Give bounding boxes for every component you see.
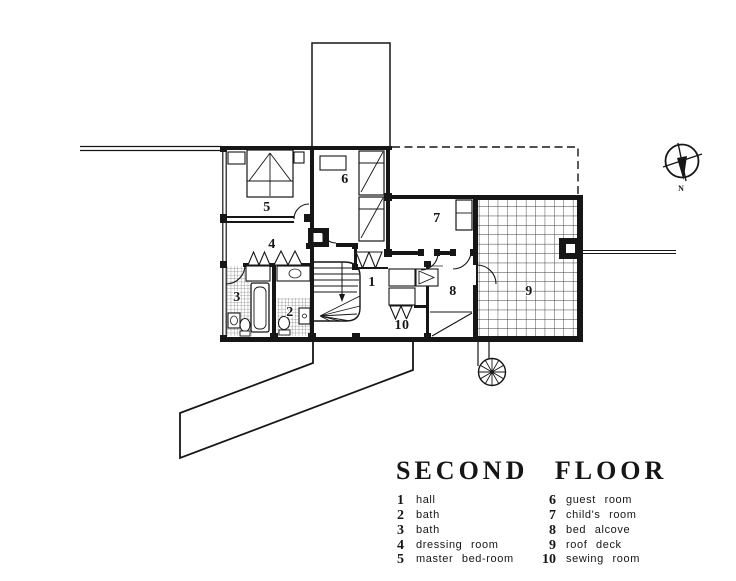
legend-label: sewing room xyxy=(566,553,640,565)
wall-top-west xyxy=(220,146,392,150)
label-room-8: 8 xyxy=(449,284,457,299)
bed-guest-1 xyxy=(359,151,384,195)
east-trellis-line xyxy=(582,251,676,254)
north-compass-icon: N xyxy=(663,143,702,193)
label-room-3: 3 xyxy=(233,290,241,305)
bath3-toilet xyxy=(240,319,250,337)
legend-column-2: 6 guest room 7 child's room 8 bed alcove… xyxy=(542,493,640,567)
wall-room5-south-b xyxy=(222,221,294,223)
hall-cabinet-2 xyxy=(389,288,415,305)
site-lines xyxy=(80,43,676,458)
bath2-counter xyxy=(277,266,310,281)
bifold-doors-hall xyxy=(356,252,382,268)
legend-label: bath xyxy=(416,524,440,536)
legend-num: 3 xyxy=(397,523,404,538)
shelf-guest-room xyxy=(320,156,346,170)
main-stair xyxy=(314,262,360,321)
chimney-center xyxy=(308,228,329,247)
label-room-1: 1 xyxy=(368,275,376,290)
legend-num: 10 xyxy=(542,552,556,567)
wall-west-double xyxy=(223,146,226,342)
wall-baths-divider xyxy=(272,263,276,341)
floor-plan-sheet: 1 2 3 4 5 6 7 8 9 10 N SECOND FLOOR 1 ha… xyxy=(0,0,736,581)
legend-label: child's room xyxy=(566,509,637,521)
dresser-small xyxy=(294,152,304,163)
label-room-9: 9 xyxy=(525,284,533,299)
hall-cabinet-1 xyxy=(389,269,415,286)
legend-label: bed alcove xyxy=(566,524,630,536)
wall-stair-west xyxy=(310,247,314,341)
legend-label: hall xyxy=(416,494,436,506)
bed-master xyxy=(247,150,293,197)
bed-alcove-berth xyxy=(430,312,472,336)
label-room-5: 5 xyxy=(263,200,271,215)
spiral-stair xyxy=(478,342,506,386)
chimney-east xyxy=(559,238,582,259)
bath3-cabinet xyxy=(246,266,270,281)
legend-label: master bed-room xyxy=(416,553,514,565)
wall-room5-south-a xyxy=(222,216,294,218)
bifold-doors-dressing xyxy=(248,251,302,265)
legend-num: 9 xyxy=(549,538,556,553)
legend-num: 8 xyxy=(549,523,556,538)
bed-child xyxy=(456,200,472,230)
legend-label: dressing room xyxy=(416,539,499,551)
bed-guest-2 xyxy=(359,197,384,241)
overhang-dashed-line xyxy=(392,147,578,196)
legend-num: 6 xyxy=(549,493,556,508)
legend-num: 2 xyxy=(397,508,404,523)
legend-num: 4 xyxy=(397,538,404,553)
legend-num: 7 xyxy=(549,508,556,523)
compass-north-label: N xyxy=(678,184,684,193)
label-room-6: 6 xyxy=(341,172,349,187)
ramp-outline xyxy=(180,342,413,458)
trellis-line xyxy=(80,147,222,151)
legend-label: bath xyxy=(416,509,440,521)
wall-top-east xyxy=(386,195,582,199)
plan-title: SECOND FLOOR xyxy=(396,456,667,485)
legend: 1 hall 2 bath 3 bath 4 dressing room 5 m… xyxy=(397,493,640,567)
wall-deck-west-lower xyxy=(473,285,478,342)
entry-roof-outline xyxy=(312,43,390,148)
second-floor-plan-drawing: 1 2 3 4 5 6 7 8 9 10 N SECOND FLOOR 1 ha… xyxy=(0,0,736,581)
label-room-7: 7 xyxy=(433,211,441,226)
nightstand xyxy=(228,152,245,164)
legend-label: guest room xyxy=(566,494,632,506)
legend-num: 1 xyxy=(397,493,404,508)
bathtub xyxy=(251,283,269,332)
legend-num: 5 xyxy=(397,552,404,567)
label-room-10: 10 xyxy=(395,318,410,333)
wall-deck-east xyxy=(578,195,583,342)
roof-deck xyxy=(477,199,578,337)
legend-label: roof deck xyxy=(566,539,622,551)
linen-closet xyxy=(416,266,443,286)
label-room-2: 2 xyxy=(286,305,294,320)
legend-column-1: 1 hall 2 bath 3 bath 4 dressing room 5 m… xyxy=(397,493,514,567)
bath2-shower xyxy=(299,308,310,324)
label-room-4: 4 xyxy=(268,237,276,252)
bath3-sink xyxy=(228,313,240,328)
